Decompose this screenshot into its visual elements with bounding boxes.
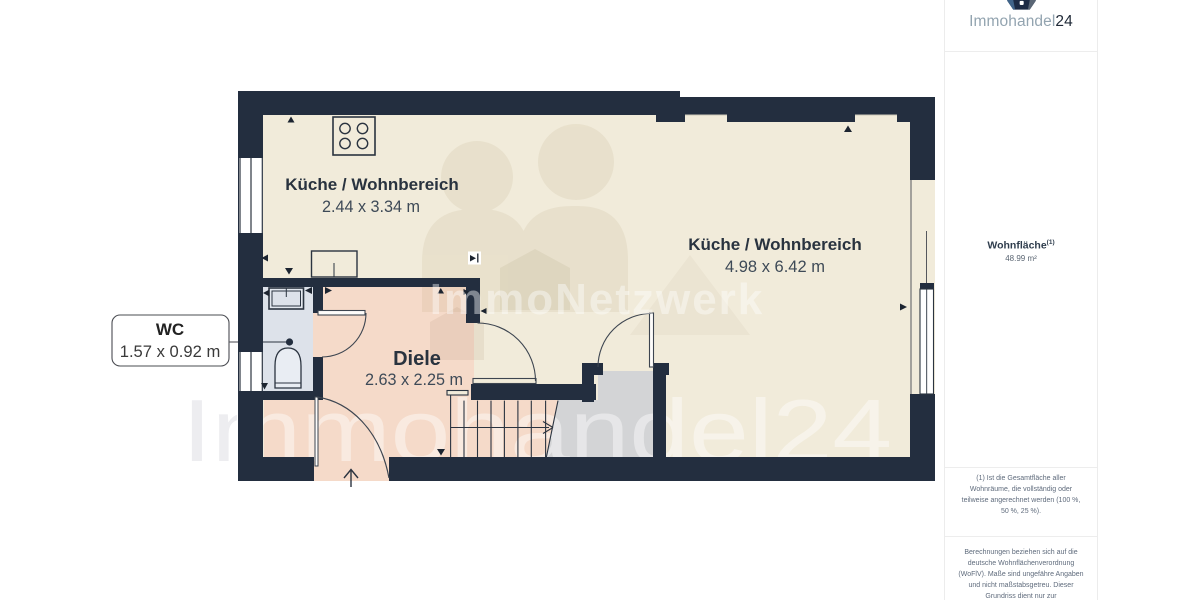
svg-text:2.63 x 2.25 m: 2.63 x 2.25 m: [365, 371, 463, 389]
svg-text:Küche / Wohnbereich: Küche / Wohnbereich: [688, 235, 862, 254]
svg-text:4.98 x 6.42 m: 4.98 x 6.42 m: [725, 258, 825, 276]
svg-text:Küche / Wohnbereich: Küche / Wohnbereich: [285, 175, 459, 194]
svg-text:2.44 x 3.34 m: 2.44 x 3.34 m: [322, 198, 420, 216]
svg-text:1.57 x 0.92 m: 1.57 x 0.92 m: [120, 342, 221, 361]
svg-text:ImmoNetzwerk: ImmoNetzwerk: [430, 275, 765, 324]
svg-text:WC: WC: [156, 320, 184, 339]
svg-text:Diele: Diele: [393, 348, 441, 370]
